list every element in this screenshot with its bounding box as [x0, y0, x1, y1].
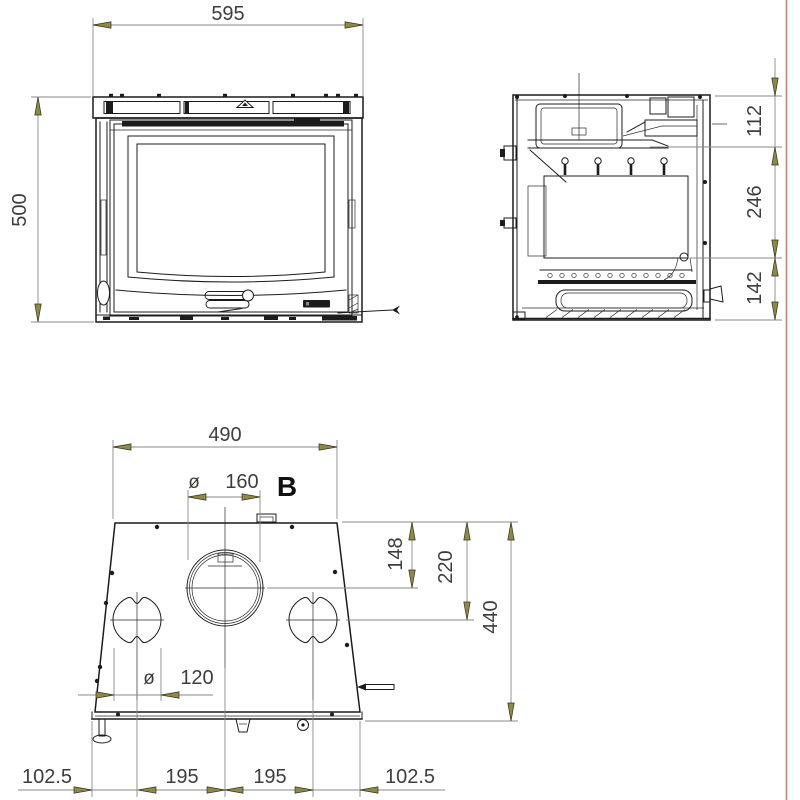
flue-diameter-label: 160: [225, 471, 258, 493]
front-view: [93, 94, 400, 322]
grate-bumps: [548, 273, 684, 277]
bottom-bracket: [236, 719, 250, 732]
side-middle-section-label: 246: [744, 185, 766, 218]
base-right-margin-label: 102.5: [385, 766, 435, 788]
flue-diameter-symbol: ø: [188, 472, 200, 493]
base-left-spacing-label: 195: [165, 766, 198, 788]
side-outlet-diameter-symbol: ø: [143, 668, 155, 689]
base-left-margin-label: 102.5: [22, 766, 72, 788]
firebox-bolts: [562, 158, 667, 175]
brand-badge: [303, 300, 330, 308]
door-handle: [205, 290, 254, 312]
front-height-label: 500: [9, 193, 31, 226]
flue-outlet: [185, 507, 265, 668]
side-rod: [357, 684, 394, 691]
bottom-roller: [298, 720, 309, 731]
cold-handle-rod: [338, 306, 400, 315]
side-air-knob: [704, 286, 723, 302]
left-side-outlet: [110, 592, 164, 700]
side-outlet-offset-label: 220: [435, 550, 457, 583]
flue-offset-label: 148: [385, 537, 407, 570]
side-top-section-label: 112: [744, 105, 766, 137]
depth-label: 440: [480, 600, 502, 633]
side-bottom-section-label: 142: [744, 271, 766, 304]
side-outlet-diameter-label: 120: [180, 667, 213, 689]
right-side-outlet: [286, 592, 340, 700]
side-view: [500, 73, 727, 320]
leveling-foot: [93, 719, 111, 743]
front-width-label: 595: [211, 3, 244, 25]
base-right-spacing-label: 195: [253, 766, 286, 788]
engineering-drawing-svg: 595 500 112 246 142 490 ø 160 B 148 220 …: [0, 0, 800, 800]
page-margin: [788, 0, 800, 800]
top-width-label: 490: [208, 424, 241, 446]
top-view-dimensions: [18, 440, 518, 797]
drawing-page: 595 500 112 246 142 490 ø 160 B 148 220 …: [0, 0, 800, 800]
top-view-letter: B: [277, 471, 297, 502]
